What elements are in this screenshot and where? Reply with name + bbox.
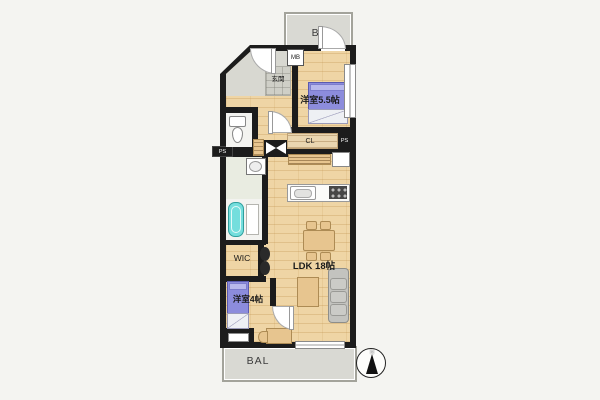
compass-north-label: N <box>357 350 387 356</box>
pipe-space-left: PS <box>212 146 233 157</box>
entrance-door-leaf <box>271 48 276 74</box>
bathroom-door <box>246 204 259 235</box>
pipe-space-right: PS <box>338 133 351 150</box>
walk-in-closet-label: WIC <box>224 254 260 263</box>
bedroom-second-window <box>228 333 249 342</box>
ldk-window <box>295 341 345 349</box>
dining-chair <box>320 221 331 230</box>
dining-table <box>303 230 335 251</box>
compass-needle <box>366 354 378 374</box>
bed-pillow <box>310 84 346 91</box>
bathtub-inner <box>231 206 241 233</box>
sofa-cushion <box>330 304 347 316</box>
wall-segment <box>270 278 276 306</box>
ldk-label: LDK 18帖 <box>290 262 338 272</box>
folding-door-leaf <box>266 142 276 154</box>
meter-box: MB <box>287 49 304 66</box>
dining-chair <box>306 221 317 230</box>
sofa-cushion <box>330 291 347 303</box>
compass-icon: N <box>356 348 386 378</box>
wic-door-icon <box>260 247 270 261</box>
balcony-door-leaf <box>318 26 323 49</box>
dining-chair <box>306 252 317 261</box>
bedroom-door-leaf <box>289 306 294 330</box>
wic-door-icon <box>260 261 270 275</box>
sofa-cushion <box>330 278 347 290</box>
floor-plan: BAL BAL 玄関 PS PS MB WIC CL <box>0 0 600 400</box>
balcony-bottom-label: BAL <box>238 356 278 367</box>
folding-door-leaf <box>276 142 286 154</box>
entrance-label: 玄関 <box>265 77 291 84</box>
kitchen-back-counter <box>288 154 331 165</box>
bedroom-main-window <box>344 64 356 118</box>
bedroom-second-label: 洋室4帖 <box>226 295 270 304</box>
refrigerator-space <box>332 152 350 167</box>
bed-pillow <box>229 283 247 290</box>
desk <box>266 328 292 344</box>
desk-chair <box>258 331 268 343</box>
kitchen-sink-basin <box>294 189 312 198</box>
coffee-table <box>297 277 319 307</box>
bedroom-main-label: 洋室5.5帖 <box>294 96 346 105</box>
bed-sheet <box>227 313 249 329</box>
hall-cabinet <box>253 139 264 156</box>
toilet-tank <box>229 116 246 127</box>
stove-icon <box>329 186 347 199</box>
folding-door-icon <box>264 140 288 157</box>
closet-label: CL <box>300 138 320 145</box>
dining-chair <box>320 252 331 261</box>
bed-sheet <box>308 109 348 124</box>
washbasin-bowl <box>249 161 262 172</box>
hall-door-leaf <box>268 111 273 134</box>
